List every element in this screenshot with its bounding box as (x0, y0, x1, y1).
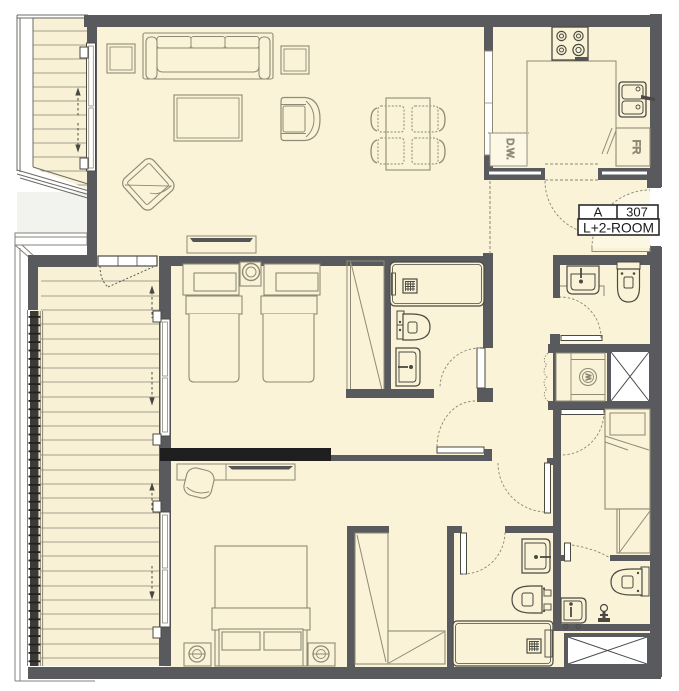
svg-text:FR: FR (630, 140, 642, 155)
svg-text:307: 307 (626, 205, 648, 220)
svg-text:W: W (586, 373, 593, 380)
svg-text:A: A (594, 205, 603, 220)
svg-text:L+2-ROOM: L+2-ROOM (583, 221, 654, 236)
svg-text:D.W.: D.W. (504, 138, 515, 160)
